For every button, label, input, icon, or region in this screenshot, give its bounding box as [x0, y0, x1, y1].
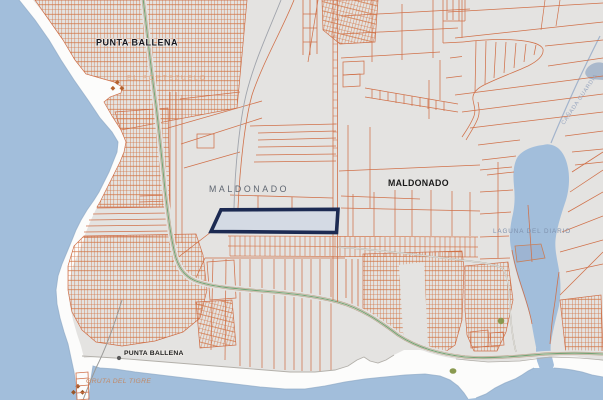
svg-text:PUNTA BALLENA: PUNTA BALLENA [124, 350, 184, 357]
svg-text:EL PORTEZUELO: EL PORTEZUELO [127, 75, 207, 82]
svg-text:GRUTA DEL TIGRE: GRUTA DEL TIGRE [86, 378, 151, 385]
svg-text:LAGUNA DEL DIARIO: LAGUNA DEL DIARIO [493, 228, 571, 235]
svg-text:PUNTA BALLENA: PUNTA BALLENA [96, 38, 178, 48]
svg-text:MALDONADO: MALDONADO [209, 184, 289, 194]
svg-text:MALDONADO: MALDONADO [388, 178, 449, 188]
